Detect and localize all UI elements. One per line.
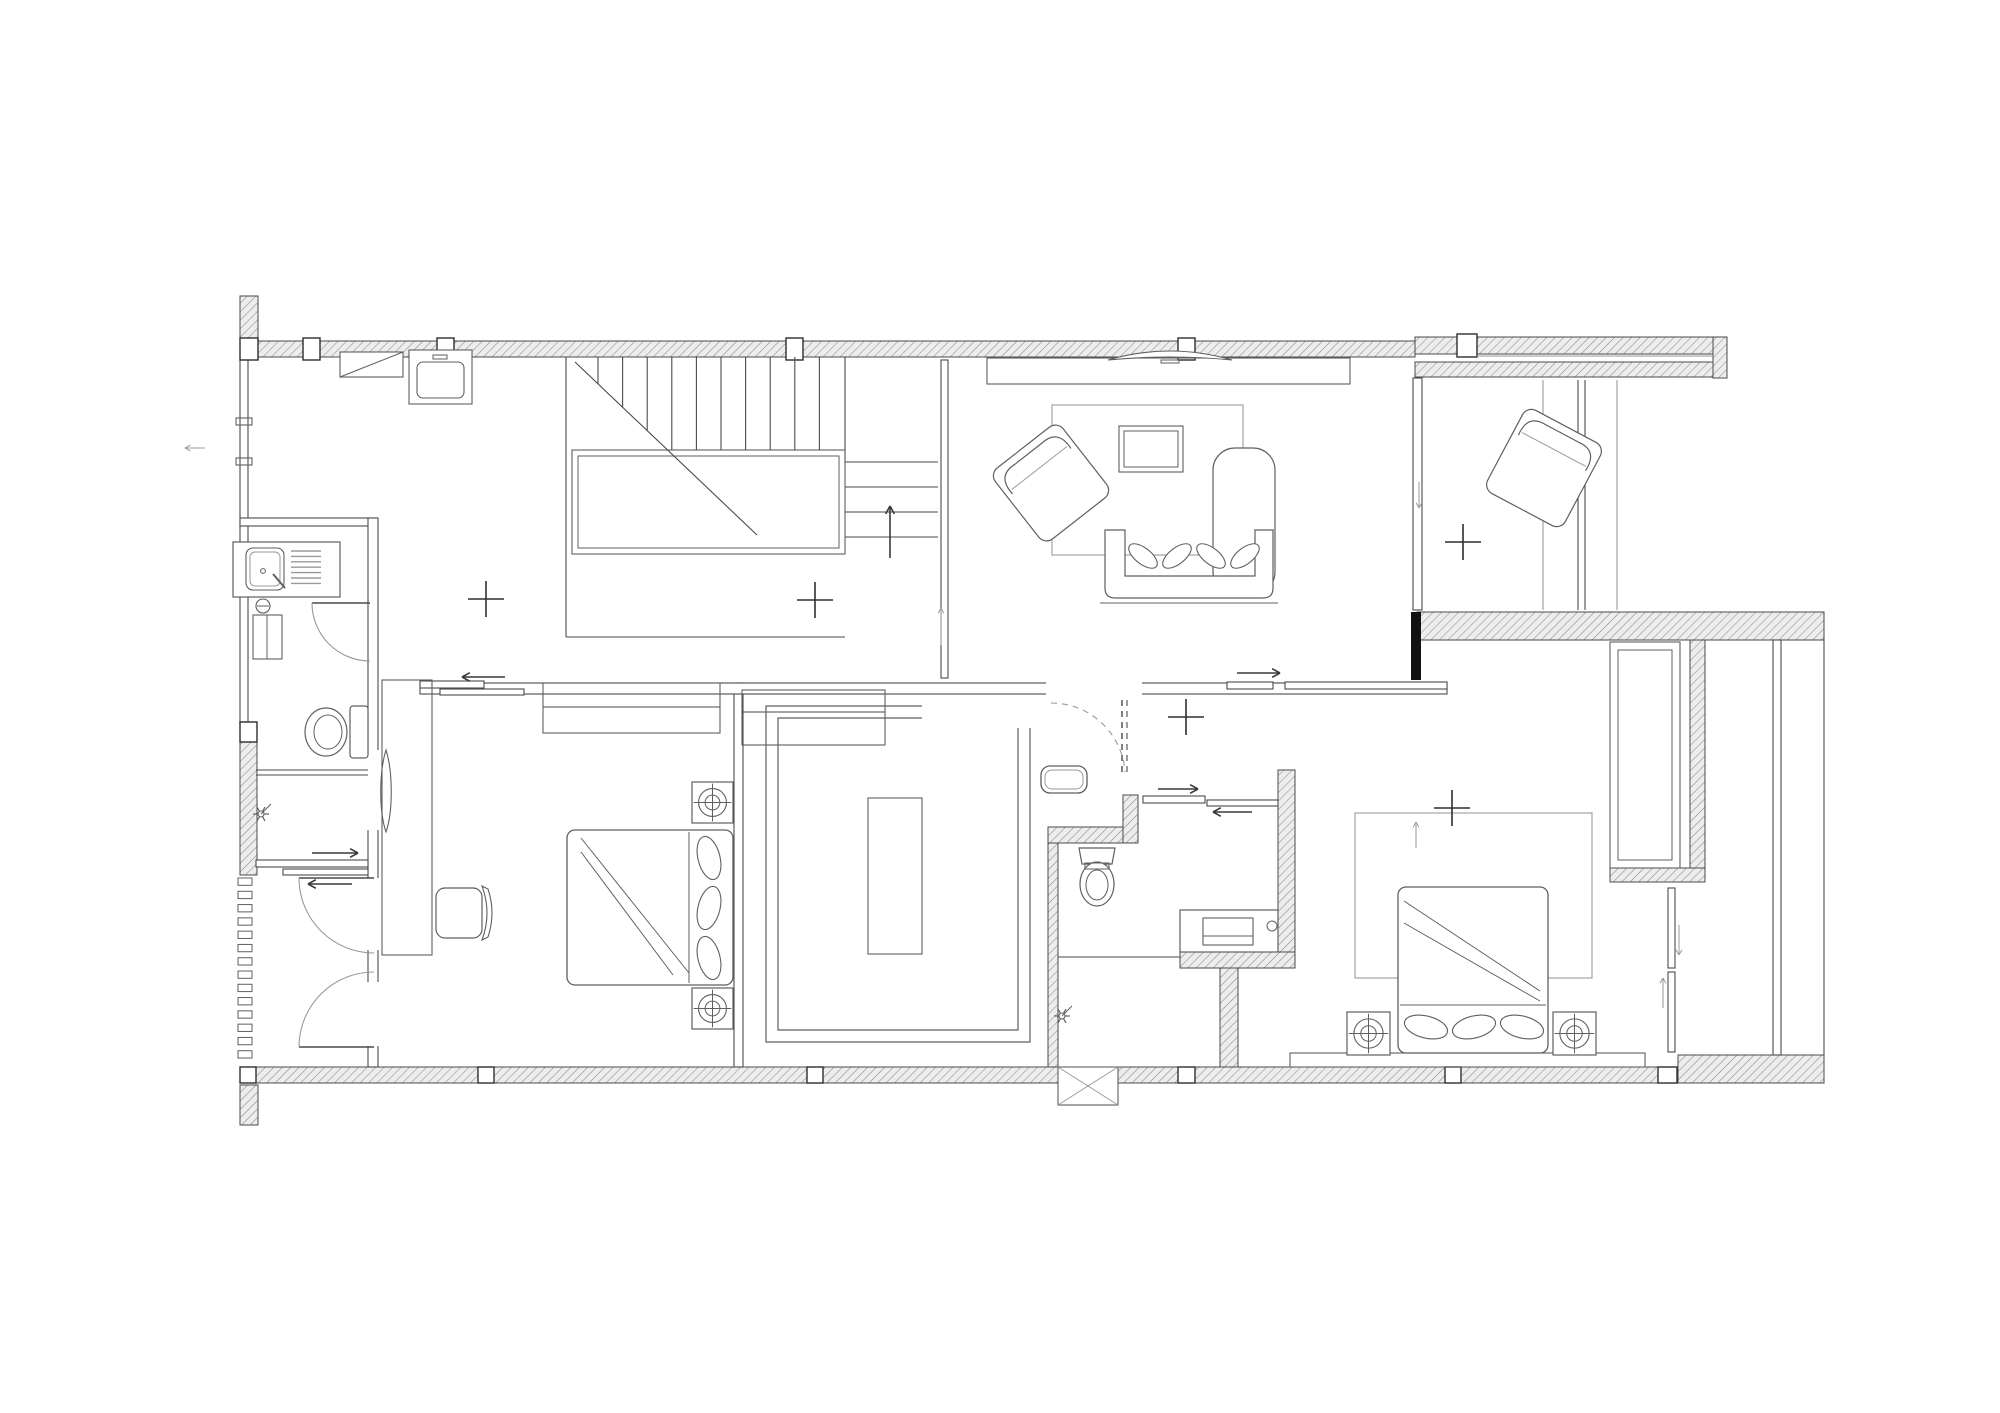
ceiling-spotlight xyxy=(1347,1012,1390,1055)
hall-divider-wall xyxy=(941,360,948,678)
bed-double xyxy=(1398,887,1548,1053)
column xyxy=(240,338,258,360)
kitchen-sink-counter xyxy=(233,542,340,597)
floor-plan-canvas xyxy=(0,0,2000,1413)
column xyxy=(478,1067,494,1083)
slide-track xyxy=(1285,682,1447,689)
balcony-window xyxy=(1773,640,1781,1055)
slide-track xyxy=(420,681,484,688)
vent-cabinet xyxy=(340,352,403,377)
slide-track xyxy=(1668,972,1675,1052)
bath2-under-vanity-wall xyxy=(1180,952,1295,968)
nook-bottom-cap xyxy=(1610,868,1705,882)
ceiling-spotlight xyxy=(1553,1012,1596,1055)
bath1-top-wall xyxy=(240,518,376,526)
slide-track xyxy=(1227,682,1273,689)
suite-top-wall xyxy=(1417,612,1824,640)
top-right-end-cap xyxy=(1713,337,1727,378)
column xyxy=(1457,334,1477,357)
suite-black-wall xyxy=(1411,612,1421,680)
slide-track xyxy=(283,869,368,875)
toilet xyxy=(305,706,368,758)
left-wall-stub-top xyxy=(240,296,258,341)
top-wall-right-inner xyxy=(1415,362,1713,377)
bed-double xyxy=(567,830,733,985)
bath2-left-wall xyxy=(1048,843,1058,1067)
column xyxy=(240,722,257,742)
ac-outdoor-unit xyxy=(1058,1067,1118,1105)
cooktop-appliance xyxy=(409,350,472,404)
ceiling-spotlight xyxy=(692,988,733,1029)
left-wall-mid xyxy=(240,742,257,875)
bath2-right-wall xyxy=(1278,770,1295,968)
floor-plan-page xyxy=(0,0,2000,1413)
column xyxy=(786,338,803,360)
column xyxy=(1658,1067,1677,1083)
column xyxy=(240,1067,256,1083)
column xyxy=(1445,1067,1461,1083)
column xyxy=(1178,1067,1195,1083)
slide-track xyxy=(1143,796,1205,803)
column xyxy=(807,1067,823,1083)
corridor-wall-bar xyxy=(1220,968,1238,1067)
left-window-wall xyxy=(240,357,248,722)
ceiling-spotlight xyxy=(692,782,733,823)
slide-track xyxy=(1207,800,1278,806)
living-right-window xyxy=(1413,378,1422,610)
vanity-cabinet xyxy=(1180,910,1278,952)
door-gap xyxy=(1046,681,1142,696)
bath2-door-jamb xyxy=(1123,795,1138,843)
column xyxy=(303,338,320,360)
left-wall-stub-bottom xyxy=(240,1085,258,1125)
slide-track xyxy=(440,689,524,695)
bottom-wall-right xyxy=(1678,1055,1824,1083)
door-gap xyxy=(366,750,380,830)
countertop-basin xyxy=(1041,766,1087,793)
nook-right-wall xyxy=(1690,640,1705,875)
slide-track xyxy=(256,860,368,867)
door-gap xyxy=(366,982,380,1046)
toilet xyxy=(1079,848,1115,906)
door-gap xyxy=(366,878,380,950)
slide-track xyxy=(1668,888,1675,968)
